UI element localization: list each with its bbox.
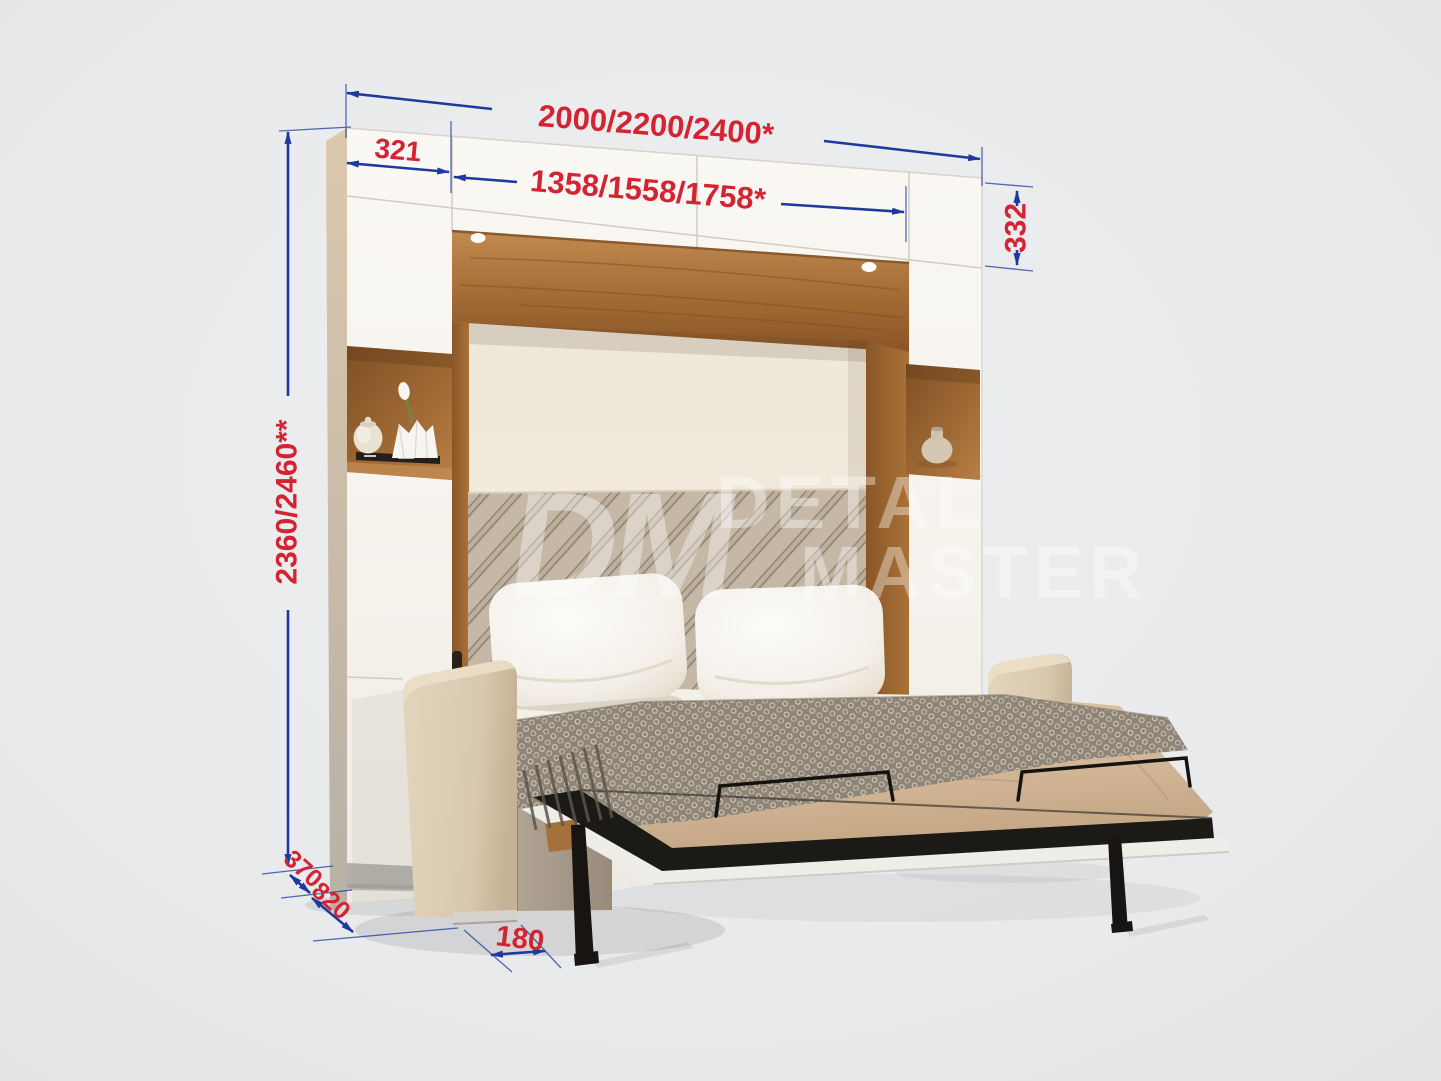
label-total-height: 2360/2460** <box>271 419 304 584</box>
label-side-cabinet-width: 321 <box>373 133 422 168</box>
left-open-shelf <box>347 346 452 480</box>
sofa-armrest-left <box>403 661 517 925</box>
wall-bed-diagram-canvas: DM DETAL MASTER <box>0 0 1441 1081</box>
spot-light-left <box>471 233 486 243</box>
spot-light-right <box>862 262 877 272</box>
watermark-brand-line2: MASTER <box>800 531 1148 614</box>
label-support-offset: 180 <box>494 920 546 958</box>
watermark-logo: DM <box>500 462 745 629</box>
product-dimension-diagram: DM DETAL MASTER <box>0 0 1441 1081</box>
label-upper-cabinet-height: 332 <box>1000 203 1033 253</box>
